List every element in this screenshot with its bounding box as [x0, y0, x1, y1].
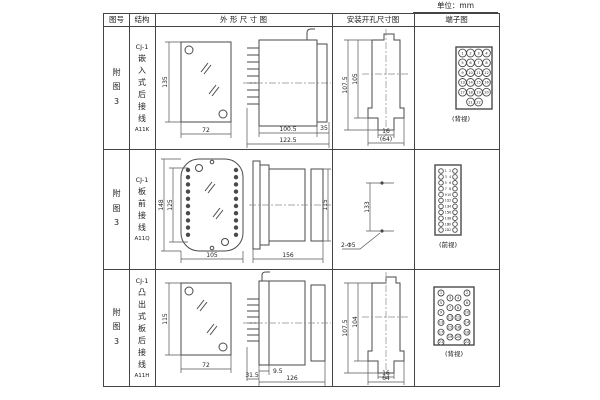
svg-text:16: 16 [456, 325, 461, 329]
type-code: A11H [135, 373, 150, 379]
svg-text:21: 21 [439, 340, 444, 344]
svg-text:5: 5 [440, 301, 442, 305]
svg-text:4: 4 [449, 175, 451, 179]
terminal-diagram-a11k: 12345678910111213141516171819202122 (背视) [414, 26, 499, 149]
side-view: 156 115 [249, 161, 331, 263]
terminal-view-label: (背视) [445, 349, 463, 358]
svg-text:16: 16 [484, 81, 489, 85]
svg-text:14: 14 [465, 321, 470, 325]
header-terminal: 端子图 [414, 14, 499, 26]
svg-text:20: 20 [447, 222, 451, 226]
structure-desc: 嵌入式后接线 [137, 53, 148, 125]
svg-text:12: 12 [456, 316, 461, 320]
svg-text:10: 10 [447, 193, 451, 197]
dim-case-height: 115 [322, 199, 329, 211]
structure-cell-a11q: CJ-1 板前接线 A11Q [129, 149, 155, 269]
header-fig: 图号 [104, 14, 129, 26]
svg-text:22: 22 [447, 228, 451, 232]
svg-text:17: 17 [439, 330, 444, 334]
svg-text:22: 22 [476, 100, 481, 104]
dim-stud-length: 31.5 [245, 372, 259, 379]
header-install: 安装开孔尺寸图 [332, 14, 414, 26]
svg-text:10: 10 [468, 71, 473, 75]
svg-text:14: 14 [447, 205, 451, 209]
dim-front-width: 72 [202, 127, 210, 134]
dim-flange-depth: 35 [320, 125, 328, 132]
svg-text:18: 18 [465, 330, 470, 334]
svg-text:16: 16 [447, 211, 451, 215]
dim-opening-width: 64 [382, 375, 390, 382]
dim-inner-height: 104 [352, 316, 359, 328]
model-label: CJ-1 [136, 277, 149, 285]
install-drawing-a11h: 107.5 104 16 64 [332, 269, 414, 386]
dim-total-depth: 156 [282, 252, 294, 259]
dim-front-width: 105 [206, 252, 218, 259]
svg-text:5: 5 [461, 61, 463, 65]
terminal-grid-a11h: 12345678910111213141516171819202122 [438, 290, 470, 345]
structure-cell-a11h: CJ-1 凸出式板后接线 A11H [129, 269, 155, 386]
terminal-diagram-a11q: 13579111315171921246810121416182022 (前视) [414, 149, 499, 269]
model-label: CJ-1 [136, 43, 149, 51]
svg-text:14: 14 [468, 81, 473, 85]
svg-text:10: 10 [465, 311, 470, 315]
side-view: 100.5 35 122.5 [243, 29, 331, 148]
dim-case-depth: 100.5 [279, 126, 296, 133]
svg-text:15: 15 [448, 325, 453, 329]
svg-text:2: 2 [466, 291, 468, 295]
dim-front-width: 72 [202, 362, 210, 369]
outline-drawing-a11q: 148 125 105 156 115 [155, 149, 332, 269]
fig-cell-row1: 附图3 [104, 26, 129, 149]
dim-hole-pitch: 133 [364, 201, 371, 213]
dim-total-depth: 122.5 [279, 137, 296, 144]
structure-cell-a11k: CJ-1 嵌入式后接线 A11K [129, 26, 155, 149]
svg-text:7: 7 [445, 187, 447, 191]
dim-slot-width: 16 [382, 128, 390, 135]
install-drawing-a11k: 107.5 105 16 (64) [332, 26, 414, 149]
fig-cell-row3: 附图3 [104, 269, 129, 386]
svg-text:12: 12 [484, 71, 489, 75]
svg-text:11: 11 [448, 316, 453, 320]
svg-text:2: 2 [469, 51, 471, 55]
terminal-view-label: (背视) [452, 114, 470, 123]
svg-text:3: 3 [445, 175, 447, 179]
fig-number: 附图3 [111, 187, 123, 230]
svg-text:6: 6 [449, 181, 451, 185]
svg-text:12: 12 [447, 199, 451, 203]
header-outline: 外 形 尺 寸 图 [155, 14, 332, 26]
outline-drawing-a11h: 115 72 9.5 31.5 126 [155, 269, 332, 386]
unit-label: 单位：mm [413, 0, 498, 13]
svg-text:22: 22 [465, 340, 470, 344]
structure-desc: 板前接线 [137, 186, 148, 234]
svg-text:7: 7 [449, 306, 451, 310]
svg-text:3: 3 [477, 51, 479, 55]
dim-opening-width: (64) [380, 136, 392, 143]
model-label: CJ-1 [136, 176, 149, 184]
dim-inner-height: 125 [167, 199, 174, 211]
front-view: 148 125 105 [158, 159, 243, 263]
svg-text:17: 17 [460, 91, 465, 95]
svg-text:18: 18 [468, 91, 473, 95]
dim-front-height: 148 [158, 199, 165, 211]
svg-text:20: 20 [456, 335, 461, 339]
side-view: 9.5 31.5 126 [243, 272, 331, 386]
svg-text:15: 15 [476, 81, 481, 85]
svg-text:2: 2 [449, 169, 451, 173]
install-drawing-a11q: 133 2-Φ5 [332, 149, 414, 269]
fig-number: 附图3 [111, 66, 123, 109]
fig-number: 附图3 [111, 306, 123, 349]
dim-front-height: 115 [162, 313, 169, 325]
dim-outer-height: 107.5 [342, 319, 349, 336]
dim-offset: 9.5 [273, 368, 283, 375]
svg-text:13: 13 [439, 321, 444, 325]
terminal-diagram-a11h: 12345678910111213141516171819202122 (背视) [414, 269, 499, 386]
svg-text:8: 8 [449, 187, 451, 191]
svg-text:5: 5 [445, 181, 447, 185]
outline-drawing-a11k: 135 72 100.5 35 122.5 [155, 26, 332, 149]
svg-text:19: 19 [448, 335, 453, 339]
svg-text:11: 11 [476, 71, 481, 75]
svg-text:1: 1 [461, 51, 463, 55]
dim-inner-height: 105 [352, 73, 359, 85]
svg-text:1: 1 [440, 291, 442, 295]
dim-front-height: 135 [162, 76, 169, 88]
fig-cell-row2: 附图3 [104, 149, 129, 269]
type-code: A11K [135, 127, 149, 133]
dimension-table: 图号 结构 外 形 尺 寸 图 安装开孔尺寸图 端子图 附图3 附图3 附图3 … [103, 13, 500, 387]
svg-text:21: 21 [468, 100, 473, 104]
terminal-grid-a11q: 13579111315171921246810121416182022 [439, 169, 458, 233]
svg-text:3: 3 [449, 296, 451, 300]
terminal-view-label: (前视) [439, 240, 457, 249]
type-code: A11Q [134, 236, 149, 242]
dim-hole-spec: 2-Φ5 [341, 242, 356, 249]
svg-text:1: 1 [445, 169, 447, 173]
front-view: 135 72 [162, 42, 231, 138]
structure-desc: 凸出式板后接线 [137, 287, 148, 371]
svg-text:19: 19 [476, 91, 481, 95]
terminal-grid-a11k: 12345678910111213141516171819202122 [459, 49, 491, 106]
svg-text:18: 18 [447, 216, 451, 220]
dim-case-depth: 126 [286, 375, 298, 382]
svg-text:13: 13 [460, 81, 465, 85]
dim-outer-height: 107.5 [342, 76, 349, 93]
header-structure: 结构 [129, 14, 155, 26]
front-view: 115 72 [162, 283, 231, 373]
svg-text:20: 20 [484, 91, 489, 95]
svg-text:7: 7 [477, 61, 479, 65]
page: 单位：mm 图号 结构 外 形 尺 寸 图 安装开孔尺寸图 端子图 附图3 附图… [0, 0, 600, 400]
